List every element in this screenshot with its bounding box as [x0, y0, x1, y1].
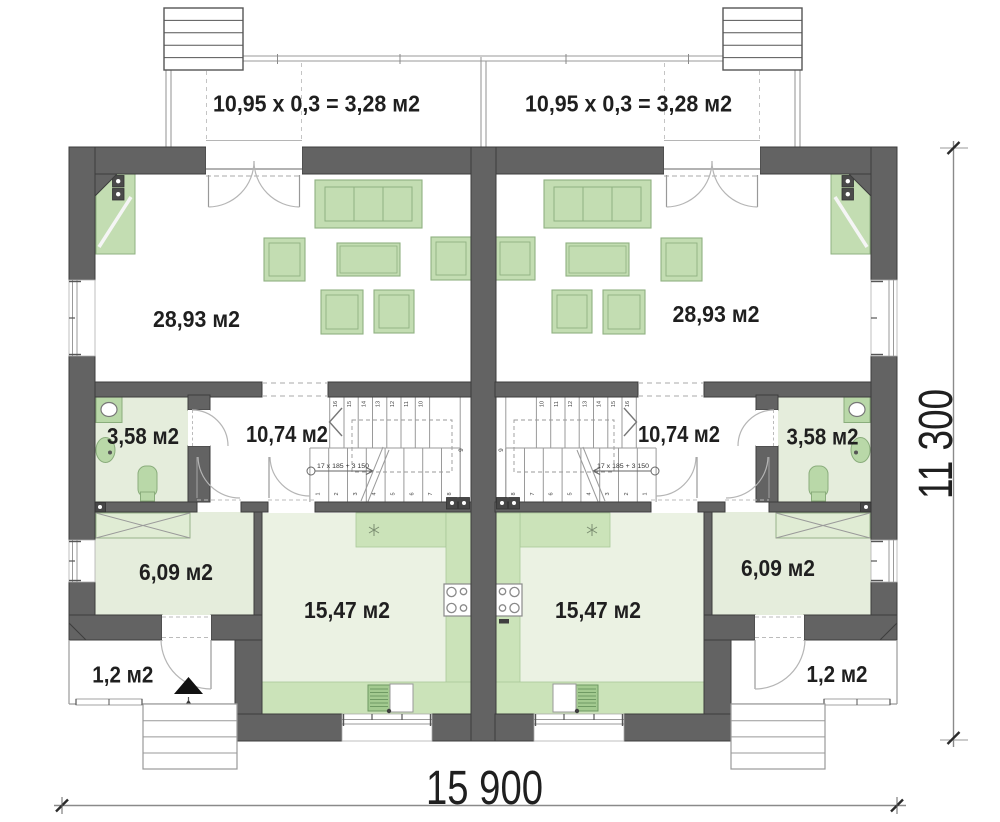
svg-text:9: 9 — [498, 448, 505, 452]
svg-text:15,47 м2: 15,47 м2 — [304, 597, 390, 623]
svg-text:8: 8 — [511, 492, 517, 495]
svg-text:1,2 м2: 1,2 м2 — [807, 661, 868, 687]
svg-text:15: 15 — [611, 401, 617, 407]
svg-text:9: 9 — [458, 448, 465, 452]
svg-text:15,47 м2: 15,47 м2 — [555, 597, 641, 623]
svg-text:2: 2 — [624, 492, 630, 495]
svg-text:10,95 x 0,3 = 3,28 м2: 10,95 x 0,3 = 3,28 м2 — [213, 91, 420, 117]
svg-text:17 x 185 + 3 150: 17 x 185 + 3 150 — [597, 464, 650, 470]
svg-text:13: 13 — [376, 401, 382, 407]
svg-text:7: 7 — [428, 492, 434, 495]
svg-text:6,09 м2: 6,09 м2 — [139, 559, 213, 585]
svg-text:17 x 185 + 3 150: 17 x 185 + 3 150 — [317, 464, 370, 470]
svg-text:11 300: 11 300 — [910, 389, 963, 499]
svg-text:4: 4 — [586, 492, 592, 495]
svg-text:1,2 м2: 1,2 м2 — [92, 662, 153, 688]
svg-text:10: 10 — [540, 401, 546, 407]
svg-text:8: 8 — [447, 492, 453, 495]
svg-text:10,74 м2: 10,74 м2 — [638, 421, 720, 447]
svg-text:1: 1 — [643, 492, 649, 495]
svg-text:15: 15 — [347, 401, 353, 407]
svg-text:6: 6 — [409, 492, 415, 495]
svg-text:3: 3 — [353, 492, 359, 495]
svg-text:1: 1 — [315, 492, 321, 495]
svg-text:3: 3 — [605, 492, 611, 495]
svg-text:16: 16 — [333, 401, 339, 407]
svg-text:15 900: 15 900 — [426, 762, 543, 815]
svg-text:13: 13 — [582, 401, 588, 407]
svg-text:4: 4 — [372, 492, 378, 495]
svg-text:12: 12 — [390, 401, 396, 407]
svg-text:11: 11 — [404, 401, 410, 407]
svg-text:11: 11 — [554, 401, 560, 407]
svg-text:3,58 м2: 3,58 м2 — [107, 423, 179, 449]
svg-text:16: 16 — [625, 401, 631, 407]
svg-text:2: 2 — [334, 492, 340, 495]
svg-text:14: 14 — [361, 401, 367, 407]
svg-text:5: 5 — [568, 492, 574, 495]
svg-text:3,58 м2: 3,58 м2 — [787, 424, 859, 450]
svg-text:10: 10 — [418, 401, 424, 407]
svg-text:10,95 x 0,3 = 3,28 м2: 10,95 x 0,3 = 3,28 м2 — [525, 91, 732, 117]
svg-text:5: 5 — [391, 492, 397, 495]
svg-text:7: 7 — [530, 492, 536, 495]
svg-text:12: 12 — [568, 401, 574, 407]
svg-text:28,93 м2: 28,93 м2 — [673, 301, 760, 327]
svg-text:10,74 м2: 10,74 м2 — [246, 421, 328, 447]
svg-text:6: 6 — [549, 492, 555, 495]
svg-text:6,09 м2: 6,09 м2 — [741, 555, 815, 581]
svg-text:28,93 м2: 28,93 м2 — [153, 306, 240, 332]
svg-text:14: 14 — [597, 401, 603, 407]
